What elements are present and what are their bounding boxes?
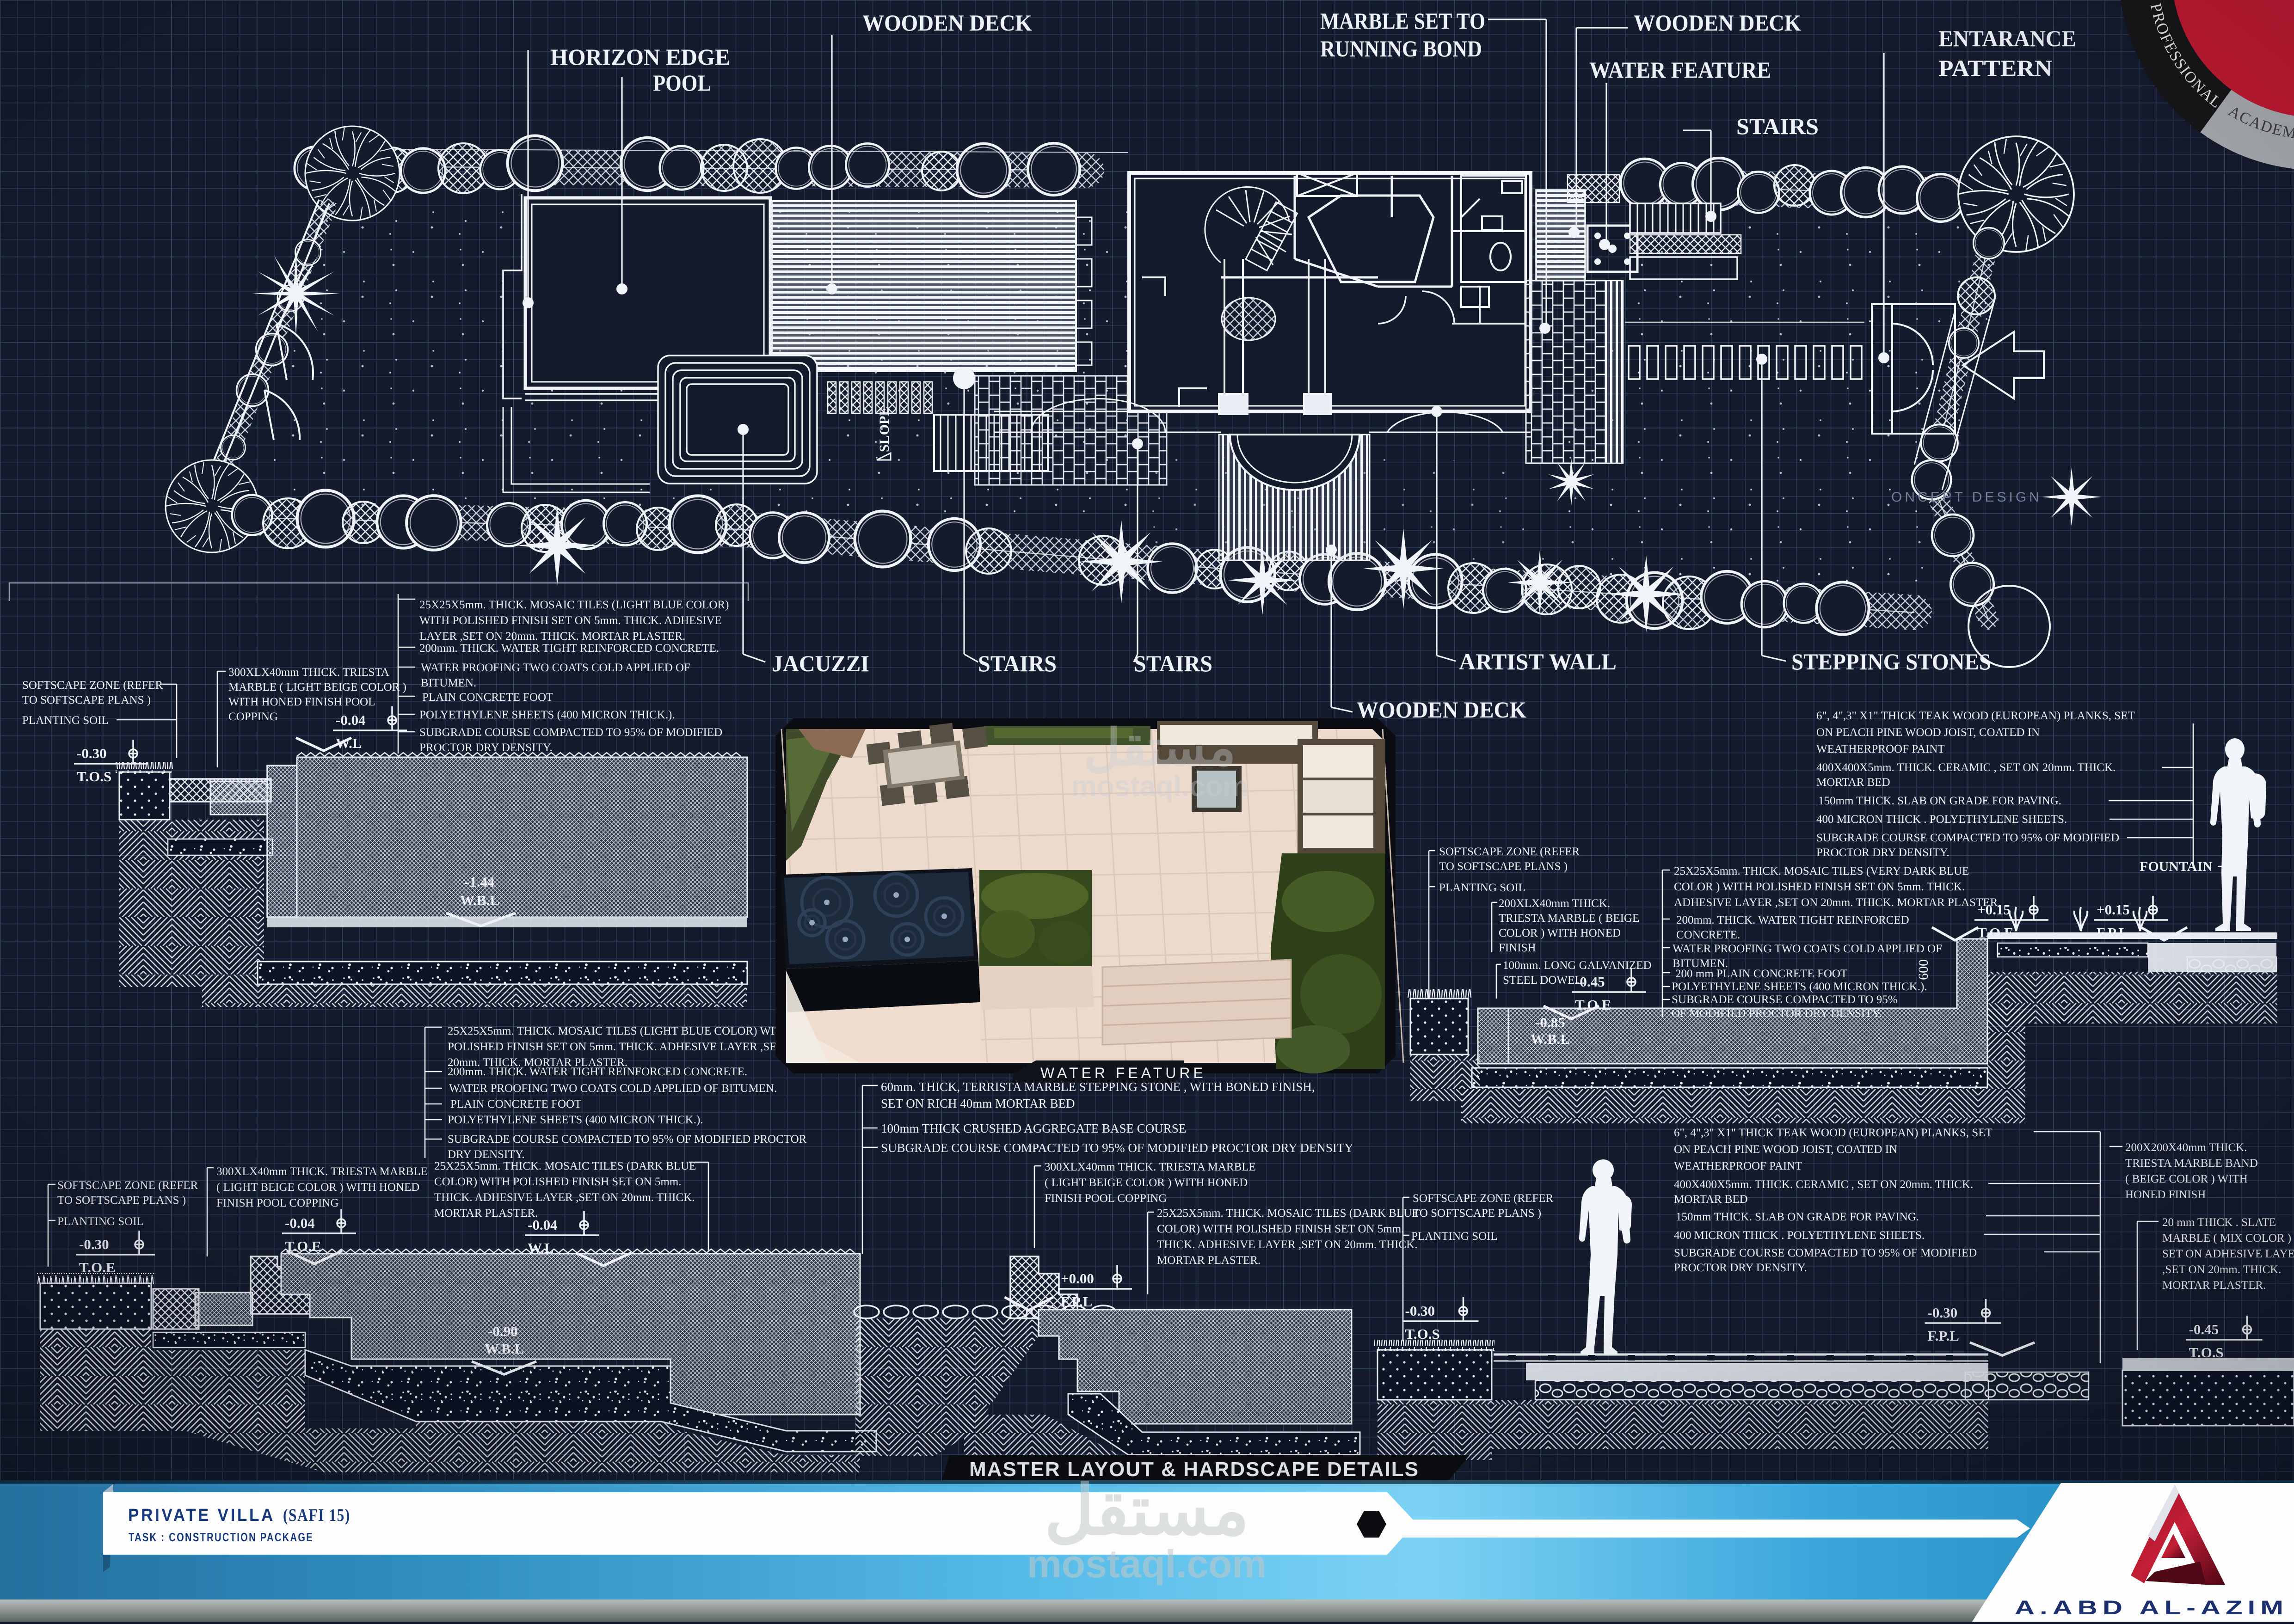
svg-text:(SAFI 15): (SAFI 15)	[283, 1506, 351, 1525]
svg-text:TASK : CONSTRUCTION PACKAGE: TASK : CONSTRUCTION PACKAGE	[129, 1530, 314, 1544]
svg-text:مستقل: مستقل	[1045, 1472, 1249, 1549]
svg-text:mostaql.com: mostaql.com	[1027, 1542, 1267, 1586]
svg-text:A.ABD AL-AZIM: A.ABD AL-AZIM	[2015, 1597, 2288, 1619]
svg-text:PRIVATE VILLA: PRIVATE VILLA	[128, 1506, 275, 1525]
